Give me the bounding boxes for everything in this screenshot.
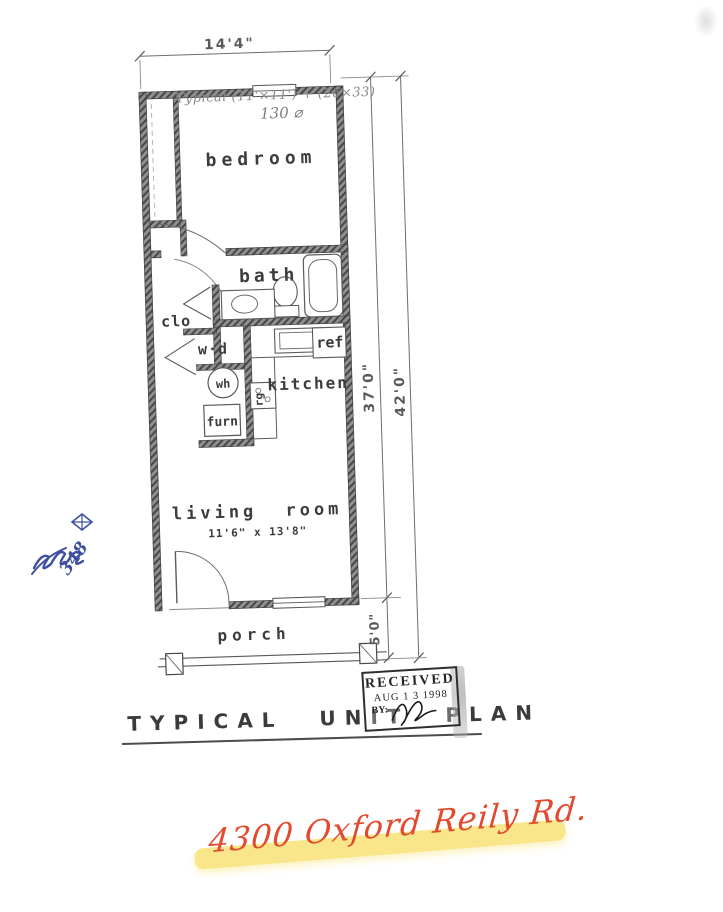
stamp-signature [383, 691, 443, 728]
width-extension-right [330, 54, 331, 83]
diamond-cross-lines [72, 514, 92, 530]
counter-end-edge [254, 438, 277, 439]
unit-depth-label: 37'0" [360, 362, 378, 413]
water-heater-label: wh [216, 377, 231, 391]
signature-stroke [391, 701, 436, 726]
counter-front-edge [251, 356, 313, 358]
entry-threshold-line [169, 608, 229, 610]
bottom-wall-right [325, 598, 359, 606]
vanity-counter [221, 289, 275, 320]
floor-plan-drawing: 14'4" 37'0" 5'0" 42'0" bedroom bath clo … [0, 0, 723, 912]
washer-dryer-label: w·d [198, 340, 229, 359]
porch-edge-line [160, 652, 387, 659]
received-stamp: RECEIVED AUG 1 3 1998 BY: [361, 666, 460, 732]
porch-label: porch [217, 624, 291, 645]
kitchen-label: kitchen [267, 373, 349, 395]
depth-extension-mid [361, 597, 401, 598]
utility-bottom-wall [199, 439, 254, 448]
range-label: rg [252, 393, 265, 407]
blue-number: 348 [56, 538, 93, 579]
scan-corner-smudge [694, 4, 718, 38]
unit-depth-dimension-line [371, 77, 387, 598]
hall-jamb-wall [180, 220, 187, 256]
left-wall [139, 92, 162, 611]
toilet-tank [274, 305, 299, 317]
bedroom-hall-wall-stub [151, 251, 161, 258]
entry-door-leaf [175, 551, 177, 603]
entry-door-arc [175, 550, 229, 604]
furnace-label: furn [206, 414, 238, 430]
width-dimension-label: 14'4" [204, 36, 255, 54]
bath-label: bath [239, 264, 299, 287]
porch-depth-label: 5'0" [367, 612, 383, 645]
porch-depth-dimension-line [387, 598, 389, 658]
blue-margin-mark: 348 [20, 502, 115, 602]
bottom-wall-left [229, 600, 273, 608]
total-depth-label: 42'0" [392, 366, 410, 417]
unit-plan-group: 14'4" 37'0" 5'0" 42'0" bedroom bath clo … [134, 31, 427, 675]
closet-shelf-line [151, 104, 155, 218]
washer-dryer-bifold-door [165, 339, 196, 376]
depth-extension-bottom [387, 658, 427, 659]
porch-outer-line [158, 660, 389, 667]
closet-label: clo [161, 312, 192, 331]
width-extension-left [140, 60, 141, 89]
blue-scribble-graphic: 348 [20, 502, 115, 602]
refrigerator-label: ref [316, 333, 344, 352]
living-room-size-label: 11'6" x 13'8" [208, 524, 307, 540]
scanned-floor-plan-page: { "document": { "title": "TYPICAL UNIT P… [0, 0, 723, 912]
living-room-label: living room [172, 499, 343, 524]
bedroom-label: bedroom [205, 147, 316, 171]
